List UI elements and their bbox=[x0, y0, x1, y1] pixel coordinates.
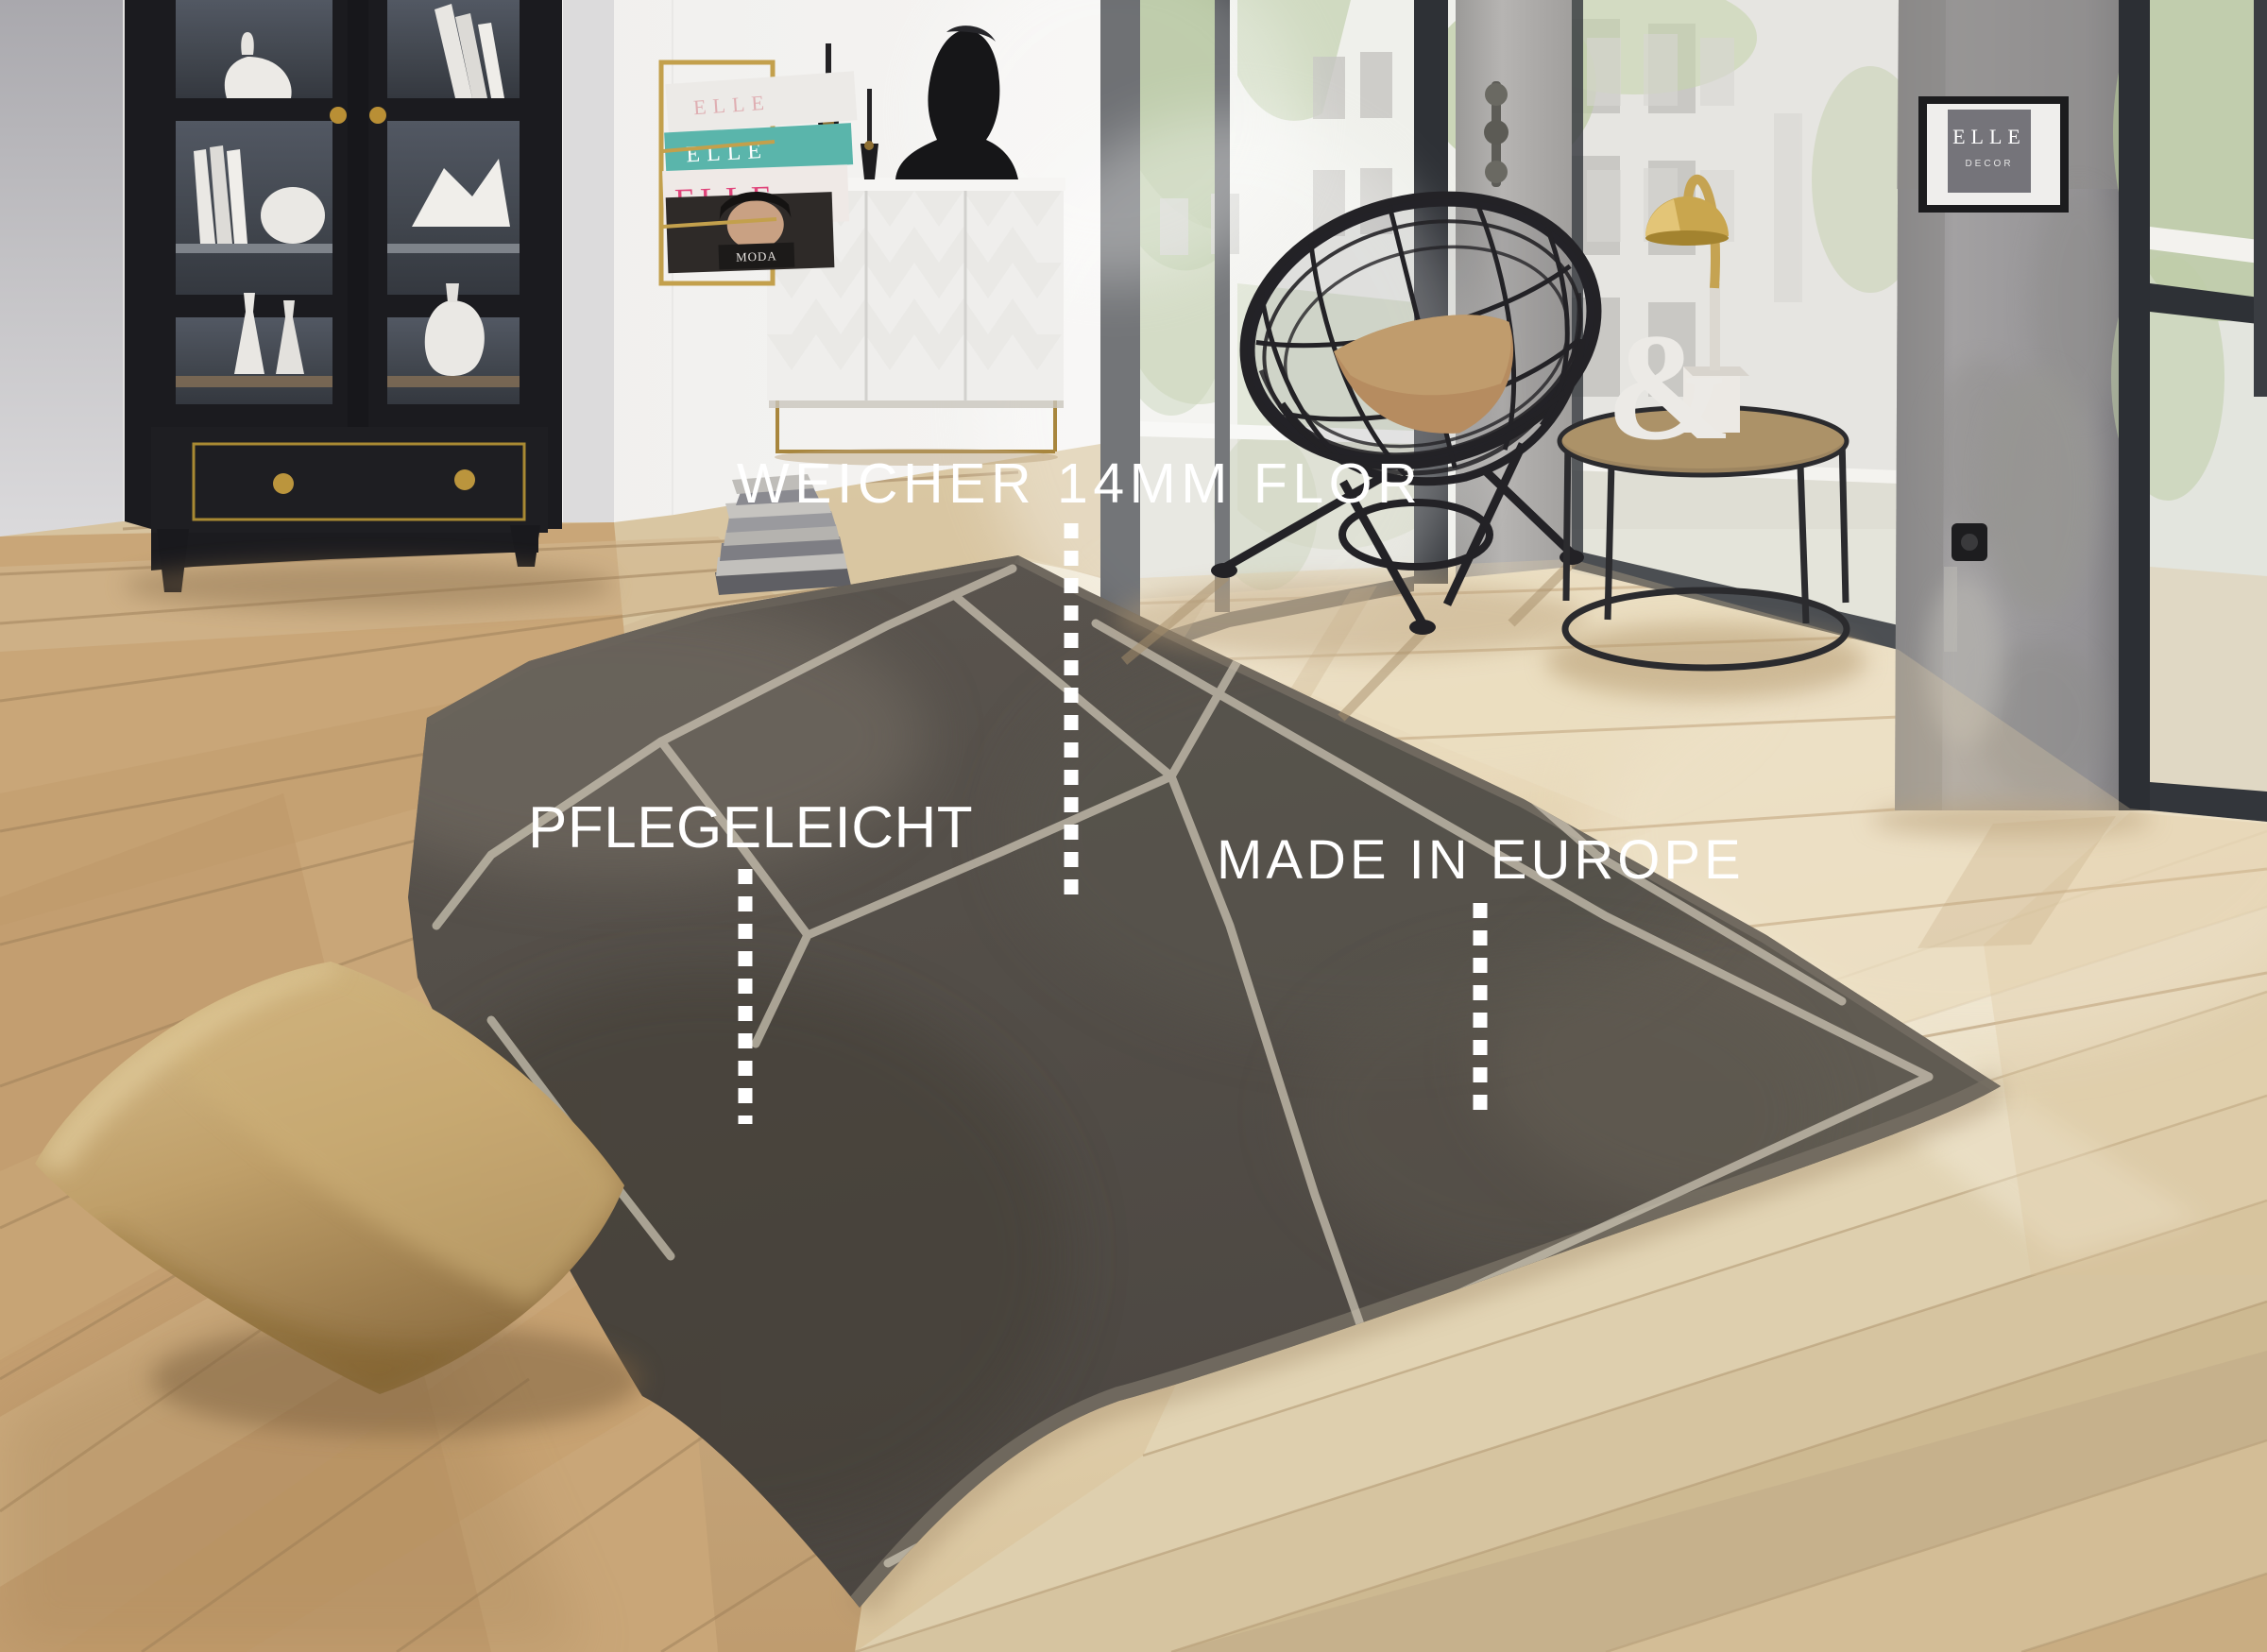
svg-text:DECOR: DECOR bbox=[1965, 159, 2013, 169]
svg-text:ELLE: ELLE bbox=[1952, 125, 2026, 148]
svg-text:&: & bbox=[1606, 303, 1733, 472]
svg-text:PFLEGELEICHT: PFLEGELEICHT bbox=[528, 795, 973, 860]
svg-text:MODA: MODA bbox=[736, 248, 777, 264]
svg-text:MADE IN EUROPE: MADE IN EUROPE bbox=[1217, 829, 1745, 891]
svg-text:WEICHER 14MM FLOR: WEICHER 14MM FLOR bbox=[737, 452, 1423, 515]
